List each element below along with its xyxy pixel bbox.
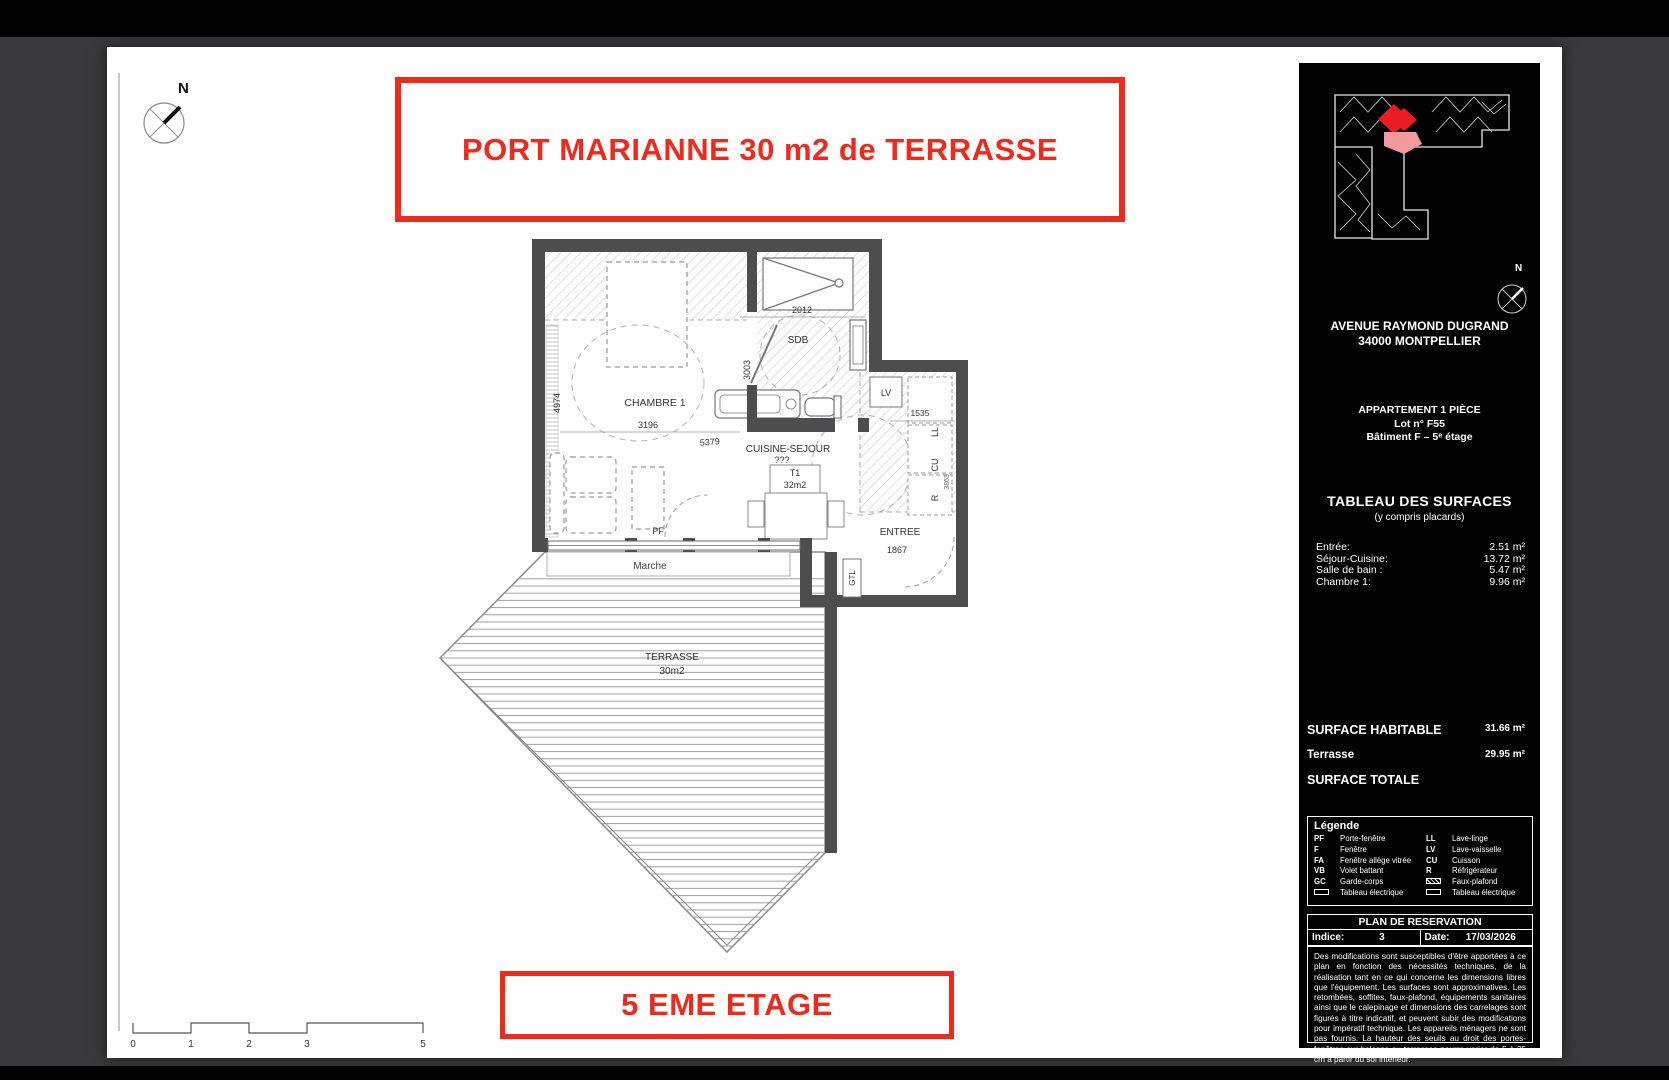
electrical-panel-icon [1426, 888, 1452, 899]
legend-label: Cuisson [1452, 856, 1526, 867]
surface-row: Entrée: 2.51 m² [1316, 542, 1525, 554]
legend-row: F Fenêtre LV Lave-vaisselle [1314, 845, 1526, 856]
legend-label: Faux-plafond [1452, 877, 1526, 888]
screenshot-canvas: N PORT MARIANNE 30 m2 de TERRASSE [0, 0, 1669, 1080]
gtl-label: GTL [848, 570, 857, 586]
electrical-panel-icon [1314, 888, 1340, 899]
date-cell: Date: 17/03/2026 [1421, 929, 1533, 945]
legend-code: CU [1426, 856, 1452, 867]
dim-3196: 3196 [638, 420, 658, 430]
address-line1: AVENUE RAYMOND DUGRAND [1299, 319, 1540, 334]
apartment-block: APPARTEMENT 1 PIÈCE Lot n° F55 Bâtiment … [1299, 404, 1540, 445]
bedroom-label: CHAMBRE 1 [624, 397, 685, 409]
appliance-stack [908, 377, 952, 515]
legend-label: Réfrigérateur [1452, 866, 1526, 877]
terrace-total-value: 29.95 m² [1485, 749, 1525, 761]
bathroom-label: SDB [788, 335, 809, 346]
plan-title: PORT MARIANNE 30 m2 de TERRASSE [462, 132, 1058, 168]
pf-label: PF [652, 526, 664, 536]
shower-drain [835, 279, 843, 287]
apartment-lot: Lot n° F55 [1299, 418, 1540, 432]
graphic-scale: 0 1 2 3 5 [125, 1011, 445, 1053]
panel-compass-north-label: N [1515, 263, 1522, 274]
address-block: AVENUE RAYMOND DUGRAND 34000 MONTPELLIER [1299, 319, 1540, 349]
scale-tick-3: 3 [304, 1039, 310, 1050]
site-plan-map [1332, 92, 1512, 242]
legend-label: Lave-linge [1452, 834, 1526, 845]
legend-code: GC [1314, 877, 1340, 888]
step-label: Marche [633, 561, 667, 572]
legend-label: Volet battant [1340, 866, 1426, 877]
indice-cell: Indice: 3 [1308, 929, 1421, 945]
reservation-title: PLAN DE RESERVATION [1307, 914, 1533, 930]
false-ceiling-icon [1426, 877, 1452, 888]
surface-label: Entrée: [1316, 542, 1350, 554]
door-swing-entry [904, 537, 954, 587]
sofa-back [550, 453, 564, 533]
legend-label: Lave-vaisselle [1452, 845, 1526, 856]
legend-title: Légende [1314, 820, 1526, 832]
legend-label: Tableau électrique [1452, 888, 1526, 899]
legend-code: LV [1426, 845, 1452, 856]
grand-total-row: SURFACE TOTALE [1307, 773, 1525, 787]
floor-plan: Marche [410, 225, 1010, 975]
toilet [805, 398, 835, 416]
scale-tick-1: 1 [188, 1039, 194, 1050]
chair-left [748, 501, 764, 527]
dining-table [765, 493, 827, 539]
disclaimer-text: Des modifications sont susceptibles d'êt… [1307, 946, 1533, 1043]
legend-row: PF Porte-fenêtre LL Lave-linge [1314, 834, 1526, 845]
dim-3863: 3863 [944, 474, 951, 490]
living-note: ??? [774, 455, 789, 465]
scale-tick-5: 5 [420, 1039, 426, 1050]
terrace-area [435, 552, 840, 957]
unit-type-label: T1 [790, 468, 801, 478]
dim-2012: 2012 [792, 305, 812, 315]
dim-4974: 4974 [552, 393, 562, 413]
toilet-tank [834, 396, 841, 418]
window-band [548, 541, 800, 550]
terrace-area-label: 30m2 [659, 666, 684, 677]
habitable-total-label: SURFACE HABITABLE [1307, 723, 1442, 737]
legend-label: Garde-corps [1340, 877, 1426, 888]
terrace-total-row: Terrasse 29.95 m² [1307, 749, 1525, 761]
top-letterbox-bar [0, 0, 1669, 37]
legend-code: F [1314, 845, 1340, 856]
dining-set [748, 493, 844, 539]
surfaces-subtitle: (y compris placards) [1299, 512, 1540, 523]
scale-tick-0: 0 [130, 1039, 136, 1050]
compass-north-label: N [178, 80, 189, 97]
washer-label: LL [930, 427, 940, 437]
date-label: Date: [1421, 932, 1450, 943]
indice-value: 3 [1344, 932, 1419, 943]
door-swing-living [665, 495, 707, 537]
fridge-label: R [930, 494, 940, 501]
legend-row: GC Garde-corps Faux-plafond [1314, 877, 1526, 888]
apartment-building: Bâtiment F – 5ᵉ étage [1299, 431, 1540, 445]
dim-1867: 1867 [887, 545, 907, 555]
bed [607, 262, 687, 367]
highlighted-unit-terrace [1384, 132, 1422, 154]
address-line2: 34000 MONTPELLIER [1299, 334, 1540, 349]
sofa-seat-1 [566, 457, 616, 493]
entry-label: ENTREE [880, 527, 921, 538]
legend-label: Fenêtre [1340, 845, 1426, 856]
terrace-total-label: Terrasse [1307, 749, 1354, 761]
habitable-total-value: 31.66 m² [1485, 723, 1525, 737]
dim-3003: 3003 [742, 360, 752, 380]
scale-tick-2: 2 [246, 1039, 252, 1050]
legend-row: FA Fenêtre allège vitrée CU Cuisson [1314, 856, 1526, 867]
plan-sheet: N PORT MARIANNE 30 m2 de TERRASSE [107, 47, 1562, 1058]
dim-1535: 1535 [911, 408, 930, 418]
floor-label: 5 EME ETAGE [621, 987, 833, 1023]
plan-title-box: PORT MARIANNE 30 m2 de TERRASSE [395, 77, 1125, 222]
north-compass-icon: N [128, 75, 218, 155]
floor-label-box: 5 EME ETAGE [500, 971, 954, 1039]
surface-row: Chambre 1: 9.96 m² [1316, 577, 1525, 589]
surface-value: 9.96 m² [1489, 577, 1525, 589]
panel-compass-icon: N [1489, 259, 1535, 325]
living-label: CUISINE-SEJOUR [746, 444, 830, 455]
sofa-seat-2 [566, 497, 616, 533]
surface-label: Chambre 1: [1316, 577, 1371, 589]
apartment-type: APPARTEMENT 1 PIÈCE [1299, 404, 1540, 418]
surfaces-header: TABLEAU DES SURFACES (y compris placards… [1299, 493, 1540, 523]
surface-value: 2.51 m² [1489, 542, 1525, 554]
cooking-label: CU [930, 459, 940, 472]
habitable-total-row: SURFACE HABITABLE 31.66 m² [1307, 723, 1525, 737]
grand-total-label: SURFACE TOTALE [1307, 773, 1419, 787]
bottom-letterbox-bar [0, 1066, 1669, 1080]
legend-code: R [1426, 866, 1452, 877]
low-table [632, 467, 664, 529]
info-panel: N AVENUE RAYMOND DUGRAND 34000 MONTPELLI… [1299, 63, 1540, 1048]
legend-label: Tableau électrique [1340, 888, 1426, 899]
date-value: 17/03/2026 [1450, 932, 1532, 943]
terrace-label: TERRASSE [645, 652, 699, 663]
legend-code: LL [1426, 834, 1452, 845]
reservation-index-row: Indice: 3 Date: 17/03/2026 [1307, 929, 1533, 946]
legend-label: Fenêtre allège vitrée [1340, 856, 1426, 867]
step-band [547, 552, 790, 576]
sheet-margin-line [118, 73, 120, 1031]
dishwasher-label: LV [881, 388, 891, 398]
legend-code: VB [1314, 866, 1340, 877]
legend-label: Porte-fenêtre [1340, 834, 1426, 845]
dim-5379: 5379 [699, 436, 720, 447]
legend-code: FA [1314, 856, 1340, 867]
legend-row: Tableau électrique Tableau électrique [1314, 888, 1526, 899]
indice-label: Indice: [1308, 932, 1344, 943]
legend-row: VB Volet battant R Réfrigérateur [1314, 866, 1526, 877]
legend-code: PF [1314, 834, 1340, 845]
unit-area-label: 32m2 [784, 480, 807, 490]
legend-box: Légende PF Porte-fenêtre LL Lave-linge F… [1307, 816, 1533, 906]
chair-right [828, 501, 844, 527]
surfaces-table: Entrée: 2.51 m² Séjour-Cuisine: 13.72 m²… [1316, 542, 1525, 588]
surfaces-title: TABLEAU DES SURFACES [1299, 493, 1540, 509]
